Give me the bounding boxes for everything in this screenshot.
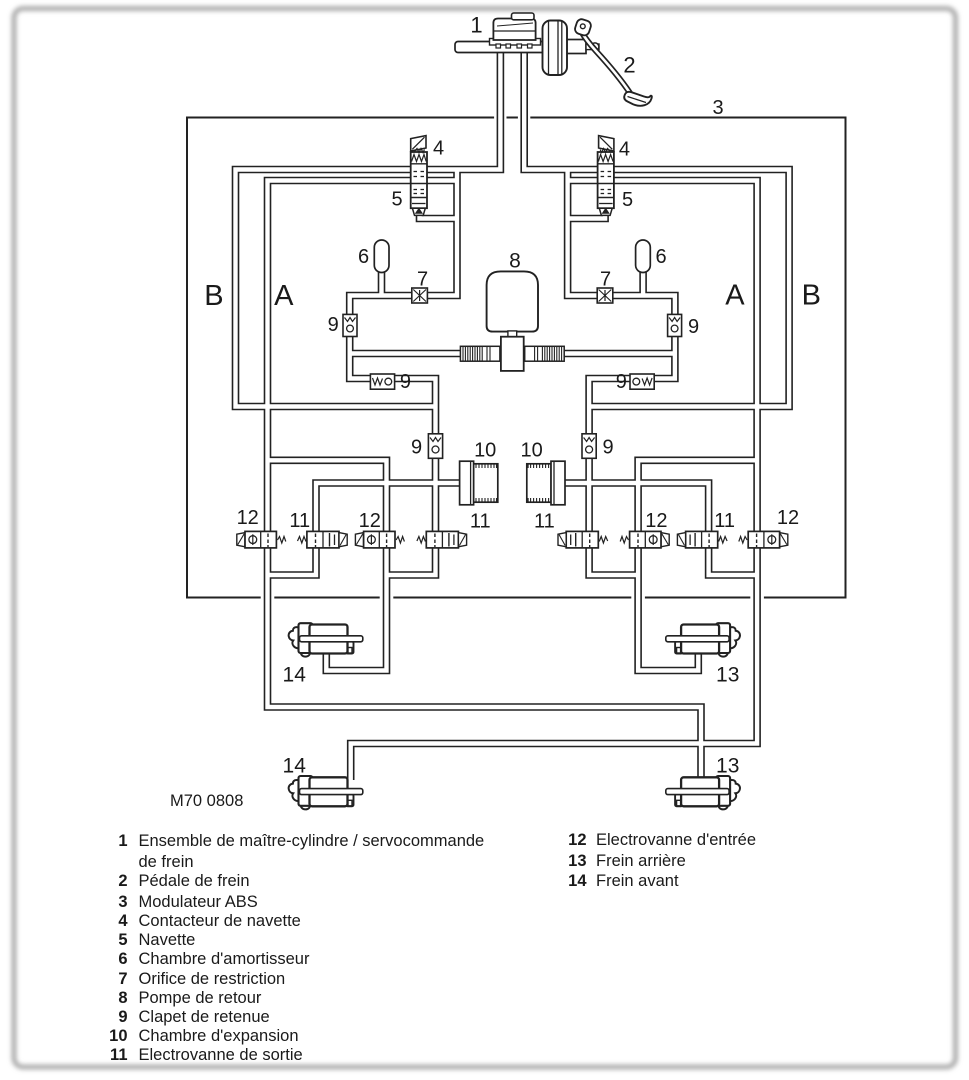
svg-text:5: 5 (622, 189, 633, 211)
svg-text:9: 9 (616, 371, 627, 393)
svg-text:5: 5 (391, 189, 402, 211)
svg-text:1: 1 (470, 13, 482, 38)
svg-text:Clapet de retenue: Clapet de retenue (139, 1008, 270, 1026)
svg-text:Chambre d'expansion: Chambre d'expansion (139, 1027, 299, 1045)
svg-text:B: B (204, 280, 223, 312)
svg-text:2: 2 (118, 872, 127, 890)
svg-text:7: 7 (417, 269, 428, 291)
svg-text:7: 7 (118, 970, 127, 988)
svg-text:3: 3 (712, 97, 723, 119)
svg-text:6: 6 (655, 246, 666, 268)
svg-text:6: 6 (358, 246, 369, 268)
svg-text:A: A (725, 280, 745, 312)
svg-text:6: 6 (118, 950, 127, 968)
svg-text:12: 12 (645, 510, 667, 532)
svg-text:Modulateur ABS: Modulateur ABS (139, 893, 258, 911)
svg-text:Orifice de restriction: Orifice de restriction (139, 970, 286, 988)
svg-text:12: 12 (568, 831, 586, 849)
svg-text:B: B (802, 280, 821, 312)
svg-text:Frein arrière: Frein arrière (596, 852, 686, 870)
svg-text:14: 14 (568, 872, 587, 890)
svg-text:Navette: Navette (139, 931, 196, 949)
svg-text:12: 12 (777, 507, 799, 529)
svg-text:A: A (274, 280, 294, 312)
svg-text:10: 10 (109, 1027, 127, 1045)
svg-text:Pédale de frein: Pédale de frein (139, 872, 250, 890)
svg-text:M70 0808: M70 0808 (170, 792, 243, 810)
svg-text:Frein avant: Frein avant (596, 872, 679, 890)
svg-text:Electrovanne d'entrée: Electrovanne d'entrée (596, 831, 756, 849)
svg-text:Pompe de retour: Pompe de retour (139, 989, 262, 1007)
svg-text:3: 3 (118, 893, 127, 911)
svg-text:10: 10 (520, 440, 542, 462)
svg-text:7: 7 (600, 269, 611, 291)
svg-text:12: 12 (237, 507, 259, 529)
svg-text:Electrovanne de sortie: Electrovanne de sortie (139, 1046, 303, 1064)
svg-text:10: 10 (474, 440, 496, 462)
svg-text:14: 14 (283, 664, 307, 687)
svg-text:Contacteur de navette: Contacteur de navette (139, 912, 301, 930)
svg-text:5: 5 (118, 931, 127, 949)
svg-text:9: 9 (411, 437, 422, 459)
svg-text:9: 9 (688, 316, 699, 338)
svg-text:Chambre d'amortisseur: Chambre d'amortisseur (139, 950, 310, 968)
svg-text:de frein: de frein (139, 853, 194, 871)
svg-text:12: 12 (359, 510, 381, 532)
svg-text:14: 14 (283, 755, 307, 778)
svg-text:4: 4 (433, 138, 444, 160)
svg-text:11: 11 (470, 511, 491, 533)
svg-text:13: 13 (568, 852, 586, 870)
svg-text:9: 9 (400, 371, 411, 393)
svg-text:8: 8 (509, 250, 521, 273)
svg-text:13: 13 (716, 664, 739, 687)
svg-text:Ensemble de maître-cylindre /: Ensemble de maître-cylindre / servocomma… (139, 832, 485, 850)
svg-text:4: 4 (619, 139, 630, 161)
svg-text:8: 8 (118, 989, 127, 1007)
svg-text:9: 9 (328, 314, 339, 336)
svg-text:1: 1 (118, 832, 127, 850)
svg-text:11: 11 (534, 511, 555, 533)
svg-text:4: 4 (118, 912, 128, 930)
svg-text:11: 11 (714, 510, 735, 532)
svg-text:2: 2 (623, 53, 635, 78)
svg-text:13: 13 (716, 755, 739, 778)
svg-text:9: 9 (602, 437, 613, 459)
svg-text:11: 11 (289, 510, 310, 532)
svg-text:9: 9 (118, 1008, 127, 1026)
svg-text:11: 11 (110, 1046, 127, 1064)
